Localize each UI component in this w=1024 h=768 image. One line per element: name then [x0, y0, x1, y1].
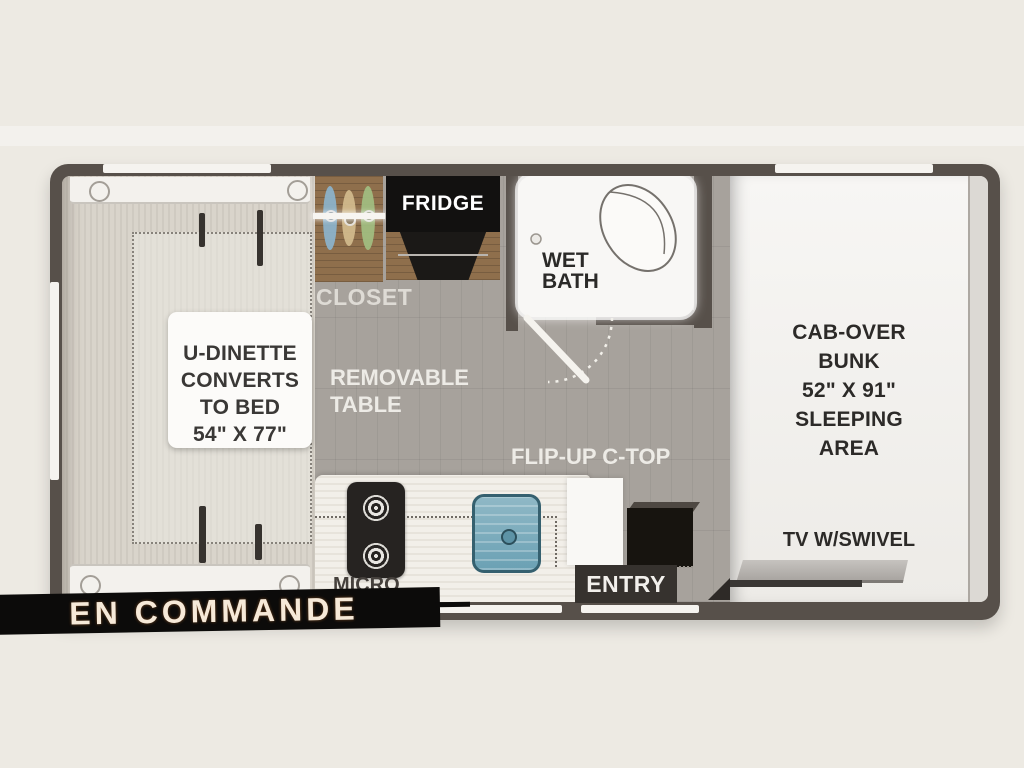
tv-label: TV W/SWIVEL: [740, 529, 958, 552]
flip-up-counter-panel: [567, 478, 623, 565]
toilet-icon: [518, 176, 694, 317]
cab-over-bunk-label: CAB-OVER BUNK 52" X 91" SLEEPING AREA: [745, 318, 953, 463]
fridge-label: FRIDGE: [386, 176, 500, 232]
cab-front-band: [968, 176, 988, 602]
window-top-left: [103, 164, 271, 173]
status-banner: EN COMMANDE: [0, 587, 440, 635]
sink-drain-icon: [501, 529, 517, 545]
background-band: [0, 126, 1024, 146]
sink-icon: [472, 494, 541, 573]
fridge-body: [386, 232, 500, 280]
table-leg-icon: [199, 213, 205, 247]
bench-cushion-icon: [287, 180, 308, 201]
bench-cushion-icon: [89, 181, 110, 202]
dinette-label-line: 54" X 77": [168, 421, 312, 448]
fridge-shelf-line: [398, 254, 488, 256]
entry-label: ENTRY: [575, 565, 677, 603]
removable-table-label: REMOVABLE TABLE: [330, 364, 469, 418]
status-banner-line: [436, 602, 470, 608]
dinette-label-line: TO BED: [168, 394, 312, 421]
fridge-icon: [394, 232, 492, 280]
fridge-area: FRIDGE: [386, 176, 500, 280]
closet-rod-icon: [313, 213, 385, 219]
burner-icon: [361, 541, 391, 571]
table-leg-icon: [255, 524, 262, 560]
closet-area: [315, 176, 383, 282]
cab-over-bunk-area: CAB-OVER BUNK 52" X 91" SLEEPING AREA TV…: [730, 176, 968, 602]
bath-door-swing-icon: [502, 308, 702, 438]
dinette-label: U-DINETTE CONVERTS TO BED 54" X 77": [168, 312, 312, 448]
dinette-bench-top: [70, 177, 310, 204]
table-leg-icon: [199, 506, 206, 563]
rv-floorplan-image: U-DINETTE CONVERTS TO BED 54" X 77" CLOS…: [0, 0, 1024, 768]
window-top-right: [775, 164, 933, 173]
flip-up-ctop-label: FLIP-UP C-TOP: [511, 444, 670, 470]
dinette-label-line: CONVERTS: [168, 367, 312, 394]
burner-icon: [361, 493, 391, 523]
closet-label: CLOSET: [316, 284, 412, 311]
wet-bath-label: WET BATH: [542, 250, 599, 292]
window-left-side: [50, 282, 59, 480]
bath-wall: [694, 176, 712, 328]
dinette-label-line: U-DINETTE: [168, 340, 312, 367]
tv-shelf-icon: [730, 580, 862, 587]
cooktop-icon: [347, 482, 405, 578]
wet-bath-area: WET BATH: [518, 176, 694, 317]
floorplan-interior: U-DINETTE CONVERTS TO BED 54" X 77" CLOS…: [62, 176, 988, 602]
entry-door-opening: [581, 605, 699, 613]
entry-step-icon: [627, 508, 693, 567]
table-leg-icon: [257, 210, 263, 266]
